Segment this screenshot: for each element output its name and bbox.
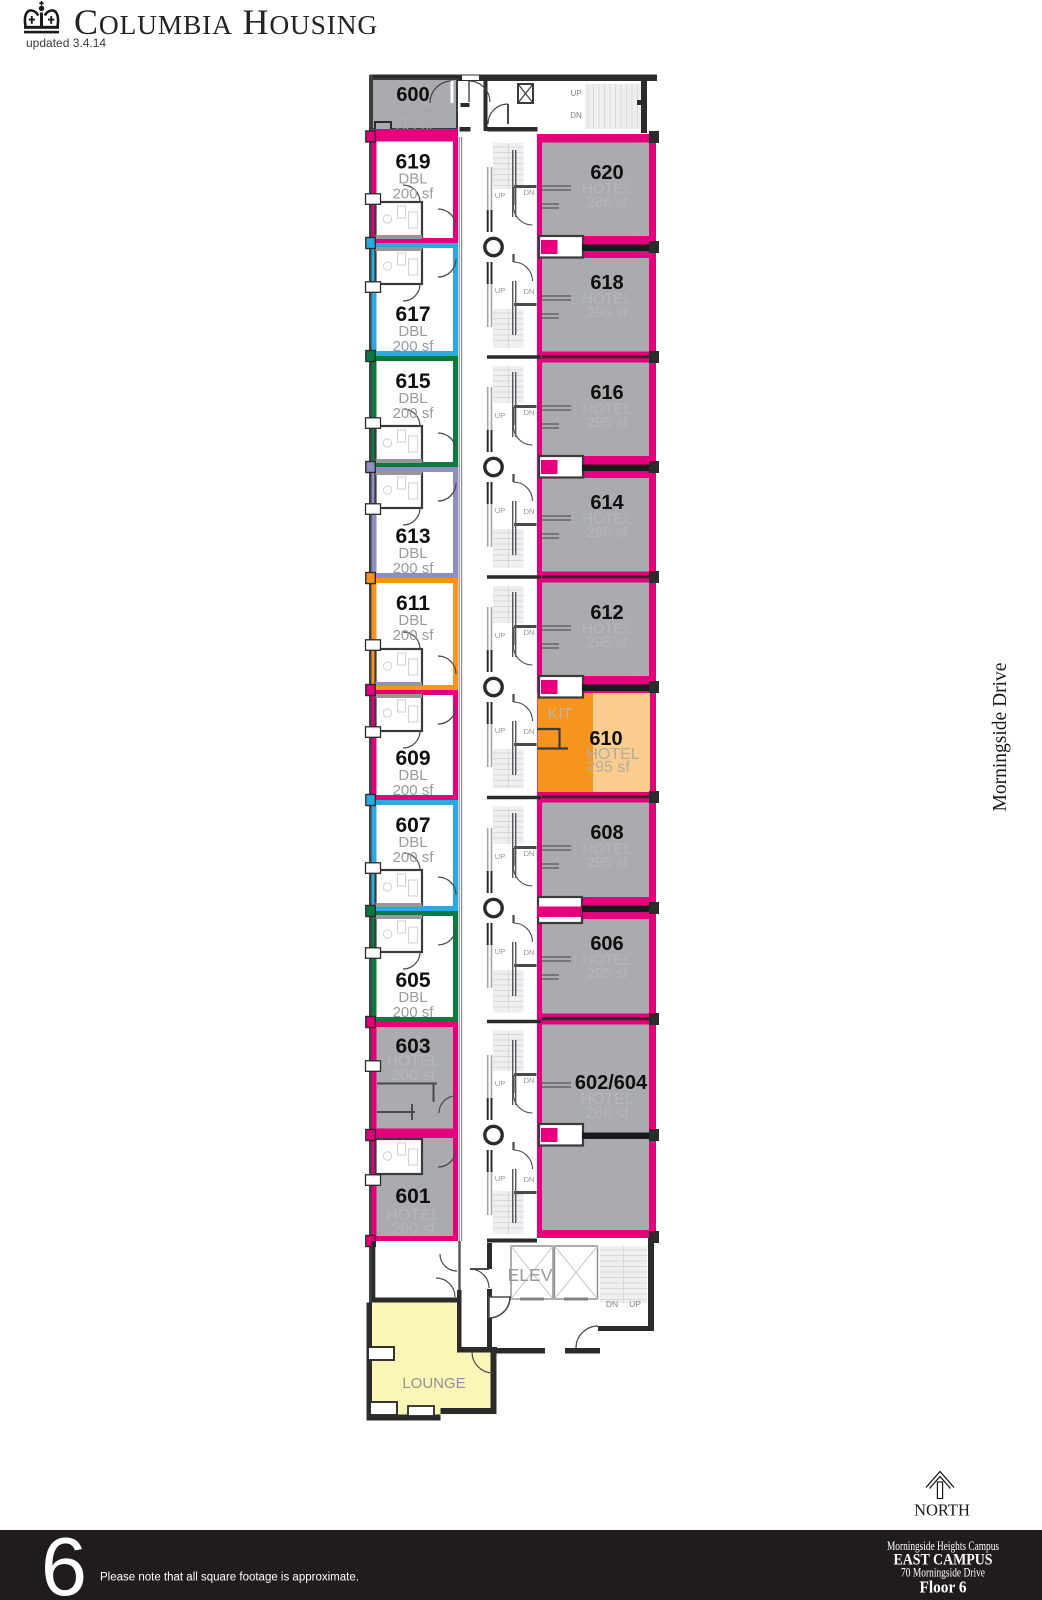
svg-text:200 sf: 200 sf <box>393 338 435 355</box>
svg-text:200 sf: 200 sf <box>393 405 435 422</box>
svg-text:Please note that all square fo: Please note that all square footage is a… <box>100 1572 359 1584</box>
svg-text:DN: DN <box>606 1299 618 1309</box>
svg-text:295 sf: 295 sf <box>586 759 630 776</box>
svg-text:DN: DN <box>524 1076 535 1085</box>
svg-text:295 sf: 295 sf <box>587 634 629 651</box>
svg-text:UP: UP <box>495 506 505 515</box>
svg-text:295 sf: 295 sf <box>587 414 629 431</box>
svg-text:DN: DN <box>524 727 535 736</box>
svg-text:NORTH: NORTH <box>914 1501 970 1520</box>
svg-text:UP: UP <box>570 89 581 98</box>
svg-text:200 sf: 200 sf <box>391 1067 435 1084</box>
svg-text:updated 3.4.14: updated 3.4.14 <box>26 36 106 50</box>
svg-text:200 sf: 200 sf <box>393 849 435 866</box>
svg-text:200 sf: 200 sf <box>393 782 435 799</box>
svg-text:295 sf: 295 sf <box>587 965 629 982</box>
svg-text:KIT: KIT <box>548 706 573 723</box>
svg-text:DN: DN <box>524 287 535 296</box>
svg-text:UP: UP <box>495 286 505 295</box>
svg-text:286 sf: 286 sf <box>585 1105 629 1122</box>
svg-text:DN: DN <box>524 948 535 957</box>
svg-text:UP: UP <box>495 191 505 200</box>
svg-text:LOUNGE: LOUNGE <box>402 1375 465 1392</box>
svg-text:DN: DN <box>570 111 582 120</box>
svg-text:295 sf: 295 sf <box>587 304 629 321</box>
svg-text:286 sf: 286 sf <box>587 194 629 211</box>
svg-text:UP: UP <box>495 726 505 735</box>
svg-text:Floor 6: Floor 6 <box>920 1578 967 1597</box>
svg-text:200 sf: 200 sf <box>393 186 435 203</box>
svg-text:UP: UP <box>629 1299 641 1309</box>
svg-text:295 sf: 295 sf <box>587 854 629 871</box>
svg-text:DN: DN <box>524 628 535 637</box>
svg-text:601: 601 <box>395 1185 430 1208</box>
svg-text:UP: UP <box>495 1174 505 1183</box>
svg-text:ELEV: ELEV <box>508 1265 553 1285</box>
svg-text:DN: DN <box>524 188 535 197</box>
svg-text:6: 6 <box>41 1520 87 1600</box>
svg-text:DN: DN <box>524 849 535 858</box>
svg-text:UP: UP <box>495 411 505 420</box>
svg-text:200 sf: 200 sf <box>393 627 435 644</box>
svg-text:DN: DN <box>524 507 535 516</box>
svg-text:UP: UP <box>495 1079 505 1088</box>
svg-text:DN: DN <box>524 408 535 417</box>
svg-text:UP: UP <box>495 947 505 956</box>
svg-text:DN: DN <box>524 1175 535 1184</box>
svg-text:600: 600 <box>396 84 429 106</box>
svg-text:295 sf: 295 sf <box>587 524 629 541</box>
svg-text:UP: UP <box>495 631 505 640</box>
svg-text:200 sf: 200 sf <box>393 1004 435 1021</box>
svg-text:UP: UP <box>495 852 505 861</box>
svg-text:200 sf: 200 sf <box>391 1221 435 1238</box>
svg-text:Morningside Drive: Morningside Drive <box>990 663 1011 812</box>
svg-text:200 sf: 200 sf <box>393 560 435 577</box>
svg-text:COLUMBIA HOUSING: COLUMBIA HOUSING <box>74 2 378 42</box>
